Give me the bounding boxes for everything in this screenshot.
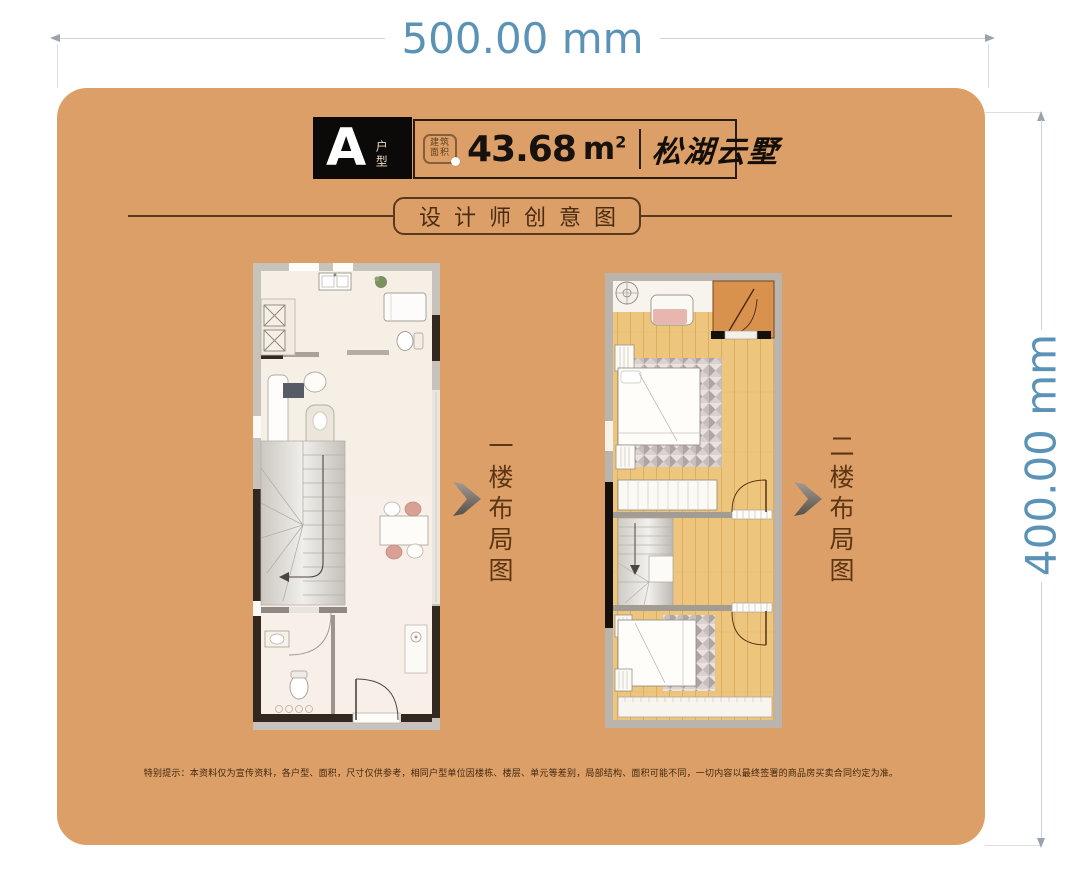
witness-line (57, 44, 58, 88)
unit-letter: A (326, 122, 366, 174)
building-area-stamp-icon: 建筑 面积 (423, 134, 457, 164)
disclaimer-text: 特别提示：本资料仅为宣传资料，各户型、面积，尺寸仅供参考，相同户型单位因楼栋、楼… (57, 766, 985, 779)
witness-line (985, 845, 1042, 846)
stairs (618, 518, 673, 610)
dimension-arrow-left-icon (50, 34, 60, 42)
area-unit: m2 (583, 131, 626, 167)
unit-type-label: 户型 (373, 140, 390, 170)
width-dimension: 500.00 mm (50, 16, 995, 60)
stairs (261, 441, 345, 605)
width-dimension-label: 500.00 mm (401, 14, 643, 63)
dimension-line (60, 38, 385, 39)
unit-type-badge: A 户型 (313, 117, 412, 179)
balcony (711, 281, 774, 339)
bottom-railing (618, 697, 772, 717)
bedroom-2 (615, 615, 715, 691)
title-line-left (128, 215, 393, 217)
poster-page: 500.00 mm 400.00 mm A 户型 建筑 面积 43.68 m2 … (0, 0, 1079, 874)
dimension-line (660, 38, 985, 39)
area-value: 43.68 (467, 129, 576, 170)
dimension-line (1041, 120, 1042, 330)
first-floor-label: 一楼布局图 (481, 433, 517, 588)
header-divider (639, 129, 641, 169)
dimension-arrow-right-icon (985, 34, 995, 42)
area-info-box: 建筑 面积 43.68 m2 松湖云墅 (413, 119, 737, 179)
stamp-line2: 面积 (430, 149, 450, 159)
floorplan-first-floor (253, 263, 440, 730)
section-title-row: 设计师创意图 (128, 197, 952, 235)
floorplan-second-floor (605, 273, 782, 728)
section-title: 设计师创意图 (393, 197, 641, 235)
dimension-line (1041, 582, 1042, 840)
stamp-dot (451, 157, 460, 166)
dimension-arrow-down-icon (1037, 838, 1045, 848)
height-dimension-label: 400.00 mm (1017, 334, 1066, 576)
side-table (405, 625, 427, 673)
second-floor-label: 二楼布局图 (822, 433, 858, 588)
bedroom-1 (615, 345, 722, 510)
title-line-right (641, 215, 952, 217)
witness-line (988, 44, 989, 88)
floorplan-card: A 户型 建筑 面积 43.68 m2 松湖云墅 设计师创意图 (57, 88, 985, 845)
witness-line (985, 112, 1042, 113)
project-name: 松湖云墅 (651, 127, 782, 171)
